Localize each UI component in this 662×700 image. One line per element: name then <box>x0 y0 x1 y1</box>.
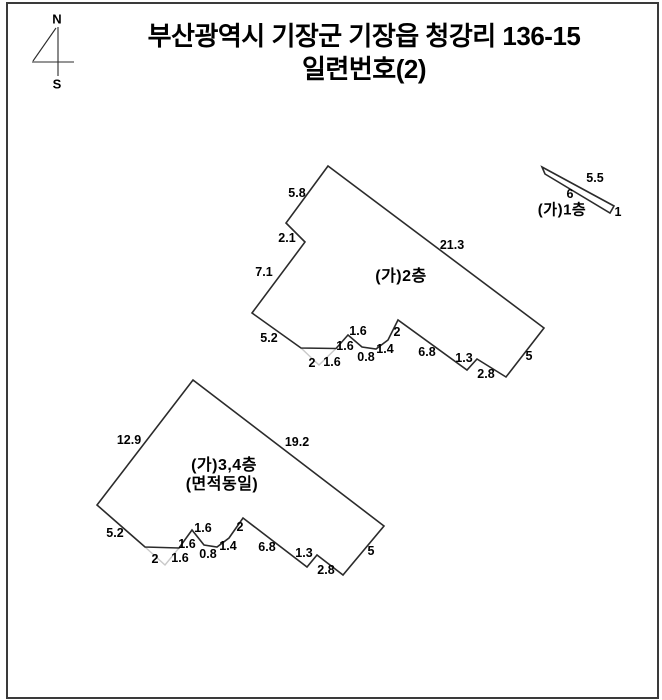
floor1-name-label: (가)1층 <box>538 203 586 218</box>
dim-floor2-bottom-mid: 6.8 <box>418 346 435 359</box>
dim-floor2-upper-left: 5.8 <box>288 187 305 200</box>
dim-floor34-notch-right: 1.6 <box>171 552 188 565</box>
compass-north-label: N <box>52 13 61 26</box>
dim-floor2-zig-rise-b: 1.4 <box>376 343 393 356</box>
page-title-line2: 일련번호(2) <box>80 53 648 86</box>
dim-floor34-upper-left: 12.9 <box>117 434 141 447</box>
dim-floor2-upper-right: 21.3 <box>440 239 464 252</box>
floor2-name-label: (가)2층 <box>375 269 427 285</box>
dim-floor34-zig-fall-a: 1.6 <box>194 522 211 535</box>
dim-floor2-zig-rise-a: 1.6 <box>336 340 353 353</box>
dim-floor2-step-up: 1.3 <box>455 352 472 365</box>
dim-floor34-zig-rise-b: 1.4 <box>219 540 236 553</box>
appraisal-drawing-page: N S 부산광역시 기장군 기장읍 청강리 136-15 일련번호(2) 5.5… <box>0 0 662 700</box>
page-title-line1: 부산광역시 기장군 기장읍 청강리 136-15 <box>80 20 648 53</box>
dim-floor2-step-down: 2.8 <box>477 368 494 381</box>
compass-south-label: S <box>53 78 62 91</box>
dim-floor34-right-end: 5 <box>368 545 375 558</box>
floor34-name-label: (가)3,4층 <box>191 458 257 474</box>
dim-floor34-bottom-mid: 6.8 <box>258 541 275 554</box>
dim-floor2-left-jog: 2.1 <box>278 232 295 245</box>
dim-floor1-lower: 6 <box>567 188 574 201</box>
dim-floor2-notch-right: 1.6 <box>323 356 340 369</box>
dim-floor34-notch-left: 2 <box>152 553 159 566</box>
floor34-note-label: (면적동일) <box>186 477 259 493</box>
page-title: 부산광역시 기장군 기장읍 청강리 136-15 일련번호(2) <box>80 20 648 86</box>
dim-floor2-notch-left: 2 <box>309 357 316 370</box>
dim-floor2-lower-left: 7.1 <box>255 266 272 279</box>
dim-floor34-upper-right: 19.2 <box>285 436 309 449</box>
dim-floor1-right-end: 1 <box>615 206 622 219</box>
dim-floor2-zig-rise-c: 2 <box>394 326 401 339</box>
dim-floor34-zig-rise-a: 1.6 <box>178 538 195 551</box>
dim-floor34-zig-rise-c: 2 <box>237 521 244 534</box>
dim-floor2-zig-flat: 0.8 <box>357 351 374 364</box>
dim-floor34-bottom-left: 5.2 <box>106 527 123 540</box>
floor-plan-drawing <box>0 0 662 700</box>
north-arrow-icon <box>32 27 74 76</box>
dim-floor2-right-end: 5 <box>526 350 533 363</box>
dim-floor2-bottom-left: 5.2 <box>260 332 277 345</box>
dim-floor34-zig-flat: 0.8 <box>199 548 216 561</box>
dim-floor2-zig-fall-a: 1.6 <box>349 325 366 338</box>
dim-floor34-step-up: 1.3 <box>295 547 312 560</box>
dim-floor1-upper: 5.5 <box>586 172 603 185</box>
dim-floor34-step-down: 2.8 <box>317 564 334 577</box>
